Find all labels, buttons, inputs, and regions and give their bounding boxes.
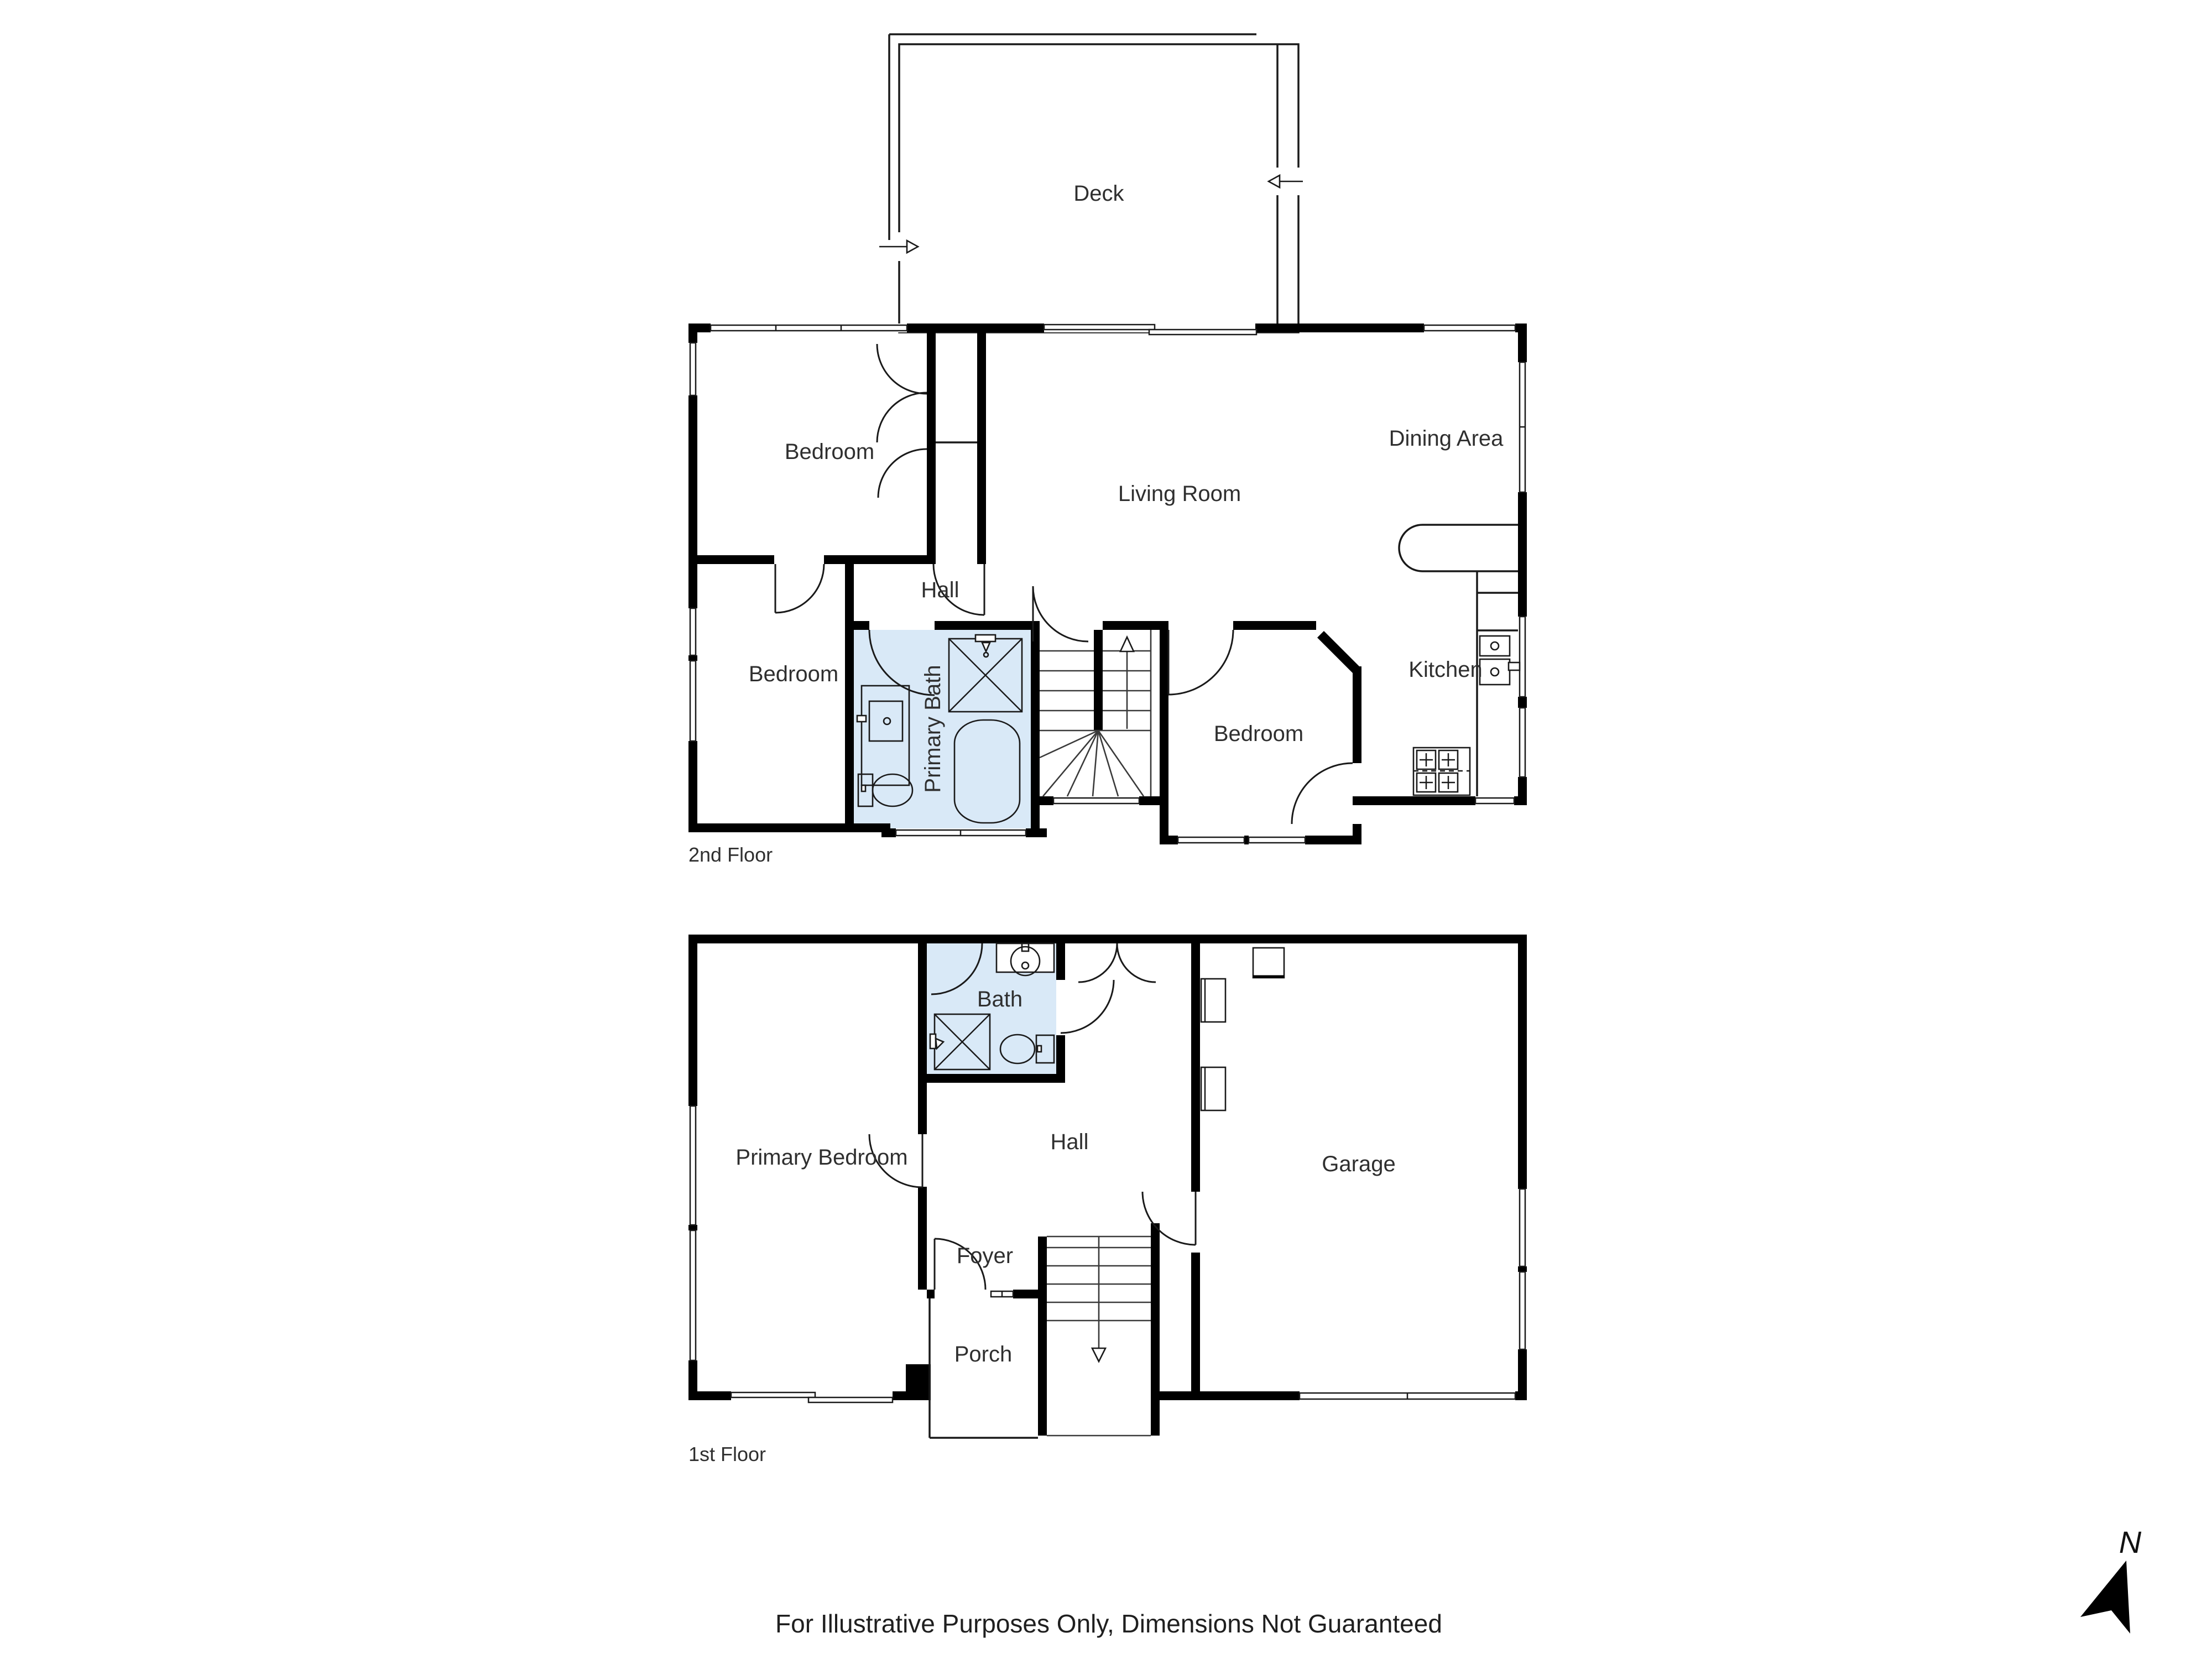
compass: N [2080,1525,2142,1634]
room-label-hall-1f: Hall [1051,1130,1089,1154]
room-label-bath: Bath [977,987,1022,1011]
deck-entry-arrow-icon [907,241,918,253]
compass-north-label: N [2119,1525,2142,1559]
room-label-kitchen: Kitchen [1408,658,1482,682]
staircase-down [1047,1237,1151,1436]
room-label-foyer: Foyer [957,1244,1013,1268]
floor-plan-drawing: Deck Bedroom Living Room Dining Area Hal… [0,0,2212,1659]
room-label-primary-bedroom: Primary Bedroom [735,1145,907,1170]
room-label-dining-area: Dining Area [1389,426,1504,451]
stove [1413,748,1470,795]
floor-label-2nd: 2nd Floor [688,843,773,866]
room-label-deck: Deck [1073,181,1124,206]
room-label-bedroom-3: Bedroom [1214,722,1303,746]
north-arrow-icon [2080,1561,2130,1634]
garage-fixtures [1201,948,1284,1110]
floor-plan-page: Deck Bedroom Living Room Dining Area Hal… [0,0,2212,1659]
pedestal-sink [997,943,1054,975]
room-label-living-room: Living Room [1118,482,1241,506]
porch-outline [930,1298,1038,1438]
room-label-porch: Porch [954,1342,1013,1366]
kitchen-counter-peninsula [1399,525,1518,571]
stairs-up-arrow-icon [1120,637,1134,651]
second-floor-plan: Deck Bedroom Living Room Dining Area Hal… [688,181,1527,866]
disclaimer-text: For Illustrative Purposes Only, Dimensio… [775,1609,1442,1638]
second-floor-windows [688,324,1527,844]
room-label-bedroom-1: Bedroom [785,440,874,464]
room-label-primary-bath: Primary Bath [921,665,945,792]
first-floor-walls [688,935,1527,1436]
water-heater [1253,948,1284,978]
kitchen-sink [1480,636,1520,685]
first-floor-plan: Bath Primary Bedroom Hall Foyer Porch Ga… [688,935,1527,1465]
second-floor-walls [688,324,1527,844]
room-label-bedroom-2: Bedroom [749,662,838,686]
room-label-garage: Garage [1322,1152,1395,1176]
stairs-down-arrow-icon [1092,1348,1105,1361]
room-label-hall-2f: Hall [921,578,959,602]
floor-label-1st: 1st Floor [688,1443,766,1465]
